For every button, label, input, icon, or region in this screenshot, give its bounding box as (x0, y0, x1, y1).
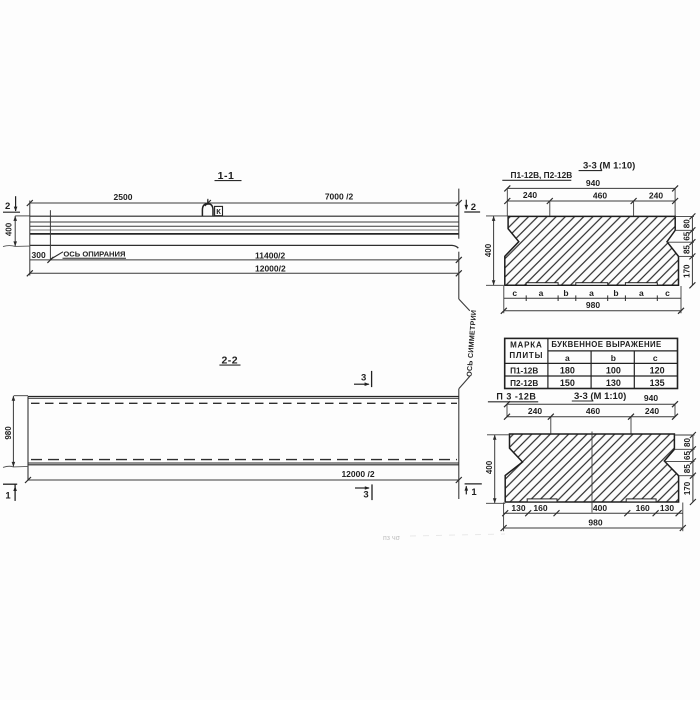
svg-text:400: 400 (5, 222, 14, 236)
svg-text:400: 400 (484, 243, 493, 257)
svg-text:с: с (665, 288, 670, 298)
svg-text:пз чσ: пз чσ (383, 535, 401, 542)
svg-text:7000 /2: 7000 /2 (325, 192, 354, 202)
svg-text:135: 135 (650, 378, 665, 388)
svg-text:160: 160 (533, 503, 547, 513)
svg-text:85: 85 (682, 245, 691, 254)
svg-text:130: 130 (511, 503, 525, 513)
svg-text:240: 240 (523, 190, 537, 200)
svg-text:400: 400 (593, 503, 607, 513)
svg-text:11400/2: 11400/2 (255, 250, 286, 260)
svg-text:К: К (216, 207, 221, 216)
svg-text:3-3 (М 1:10): 3-3 (М 1:10) (583, 161, 635, 172)
svg-text:980: 980 (586, 300, 600, 310)
svg-text:БУКВЕННОЕ ВЫРАЖЕНИЕ: БУКВЕННОЕ ВЫРАЖЕНИЕ (551, 340, 661, 349)
svg-text:МАРКА: МАРКА (510, 341, 542, 350)
svg-text:460: 460 (586, 406, 600, 416)
svg-text:с: с (512, 288, 517, 298)
svg-text:2: 2 (471, 202, 476, 213)
svg-text:1: 1 (471, 487, 477, 498)
svg-text:b: b (613, 288, 618, 298)
svg-text:65: 65 (683, 451, 692, 460)
svg-text:П 3 -12В: П 3 -12В (496, 392, 536, 402)
svg-text:3: 3 (363, 490, 368, 501)
svg-text:150: 150 (560, 378, 575, 388)
svg-text:130: 130 (660, 503, 674, 513)
svg-text:ОСЬ ОПИРАНИЯ: ОСЬ ОПИРАНИЯ (63, 250, 125, 259)
svg-text:ПЛИТЫ: ПЛИТЫ (509, 351, 543, 360)
svg-text:170: 170 (683, 481, 692, 495)
svg-text:1: 1 (5, 491, 11, 502)
svg-text:b: b (563, 288, 568, 298)
svg-text:3-3 (М 1:10): 3-3 (М 1:10) (574, 391, 626, 402)
svg-text:а: а (565, 353, 570, 363)
svg-text:12000/2: 12000/2 (255, 264, 286, 274)
svg-text:130: 130 (606, 378, 621, 388)
svg-text:80: 80 (682, 219, 691, 228)
svg-text:П2-12В: П2-12В (510, 379, 538, 388)
svg-text:П1-12В, П2-12В: П1-12В, П2-12В (511, 170, 573, 180)
svg-text:170: 170 (682, 264, 691, 278)
svg-text:b: b (611, 353, 616, 363)
svg-text:65: 65 (682, 231, 691, 240)
svg-text:а: а (639, 288, 644, 298)
svg-text:12000 /2: 12000 /2 (341, 469, 374, 479)
svg-text:980: 980 (588, 518, 602, 528)
svg-text:240: 240 (528, 406, 542, 416)
svg-text:2: 2 (5, 201, 10, 212)
svg-text:100: 100 (606, 366, 621, 376)
svg-text:80: 80 (683, 438, 692, 447)
svg-text:460: 460 (593, 191, 607, 201)
svg-text:с: с (653, 353, 658, 363)
svg-text:120: 120 (650, 366, 665, 376)
svg-text:940: 940 (586, 178, 600, 188)
svg-text:940: 940 (644, 393, 658, 403)
svg-text:180: 180 (560, 366, 575, 376)
svg-text:а: а (589, 288, 594, 298)
svg-text:980: 980 (4, 426, 13, 440)
svg-text:85: 85 (683, 464, 692, 473)
svg-text:300: 300 (32, 250, 46, 260)
svg-text:240: 240 (649, 191, 663, 201)
svg-text:2500: 2500 (114, 192, 133, 202)
svg-text:3: 3 (361, 373, 366, 384)
svg-text:П1-12В: П1-12В (510, 367, 538, 376)
svg-text:400: 400 (485, 460, 494, 474)
svg-text:160: 160 (636, 503, 650, 513)
svg-text:240: 240 (645, 406, 659, 416)
svg-text:а: а (539, 288, 544, 298)
